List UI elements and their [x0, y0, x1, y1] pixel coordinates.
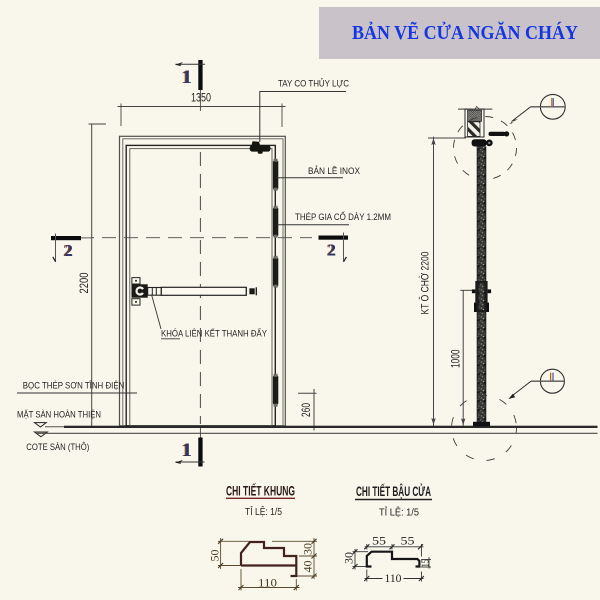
svg-text:COTE SÀN (THÔ): COTE SÀN (THÔ) [26, 442, 89, 453]
svg-text:55: 55 [372, 536, 386, 548]
svg-text:MẶT SÀN HOÀN THIỆN: MẶT SÀN HOÀN THIỆN [17, 410, 101, 421]
svg-text:50: 50 [210, 549, 222, 561]
svg-text:BỌC THÉP SƠN TĨNH ĐIỆN: BỌC THÉP SƠN TĨNH ĐIỆN [23, 381, 125, 392]
svg-text:15: 15 [420, 559, 431, 567]
svg-text:KT Ô CHỜ 2200: KT Ô CHỜ 2200 [419, 252, 432, 315]
svg-text:BẢN VẼ CỬA NGĂN CHÁY: BẢN VẼ CỬA NGĂN CHÁY [352, 20, 578, 44]
svg-text:CHI TIẾT KHUNG: CHI TIẾT KHUNG [226, 484, 295, 499]
svg-text:KHÓA LIÊN KẾT THANH ĐẨY: KHÓA LIÊN KẾT THANH ĐẨY [161, 328, 267, 340]
svg-text:110: 110 [385, 573, 402, 585]
svg-text:1350: 1350 [191, 93, 211, 105]
svg-text:260: 260 [301, 403, 313, 417]
svg-text:55: 55 [401, 536, 415, 548]
svg-text:CHI TIẾT BẬU CỬA: CHI TIẾT BẬU CỬA [356, 484, 431, 499]
svg-text:2200: 2200 [79, 273, 91, 294]
svg-text:BẢN LỀ INOX: BẢN LỀ INOX [308, 165, 361, 177]
svg-text:2: 2 [65, 241, 73, 260]
svg-text:30: 30 [303, 543, 315, 555]
svg-text:TAY CO THỦY LỰC: TAY CO THỦY LỰC [278, 78, 349, 90]
svg-text:2: 2 [328, 241, 336, 260]
svg-text:TỈ LỆ: 1/5: TỈ LỆ: 1/5 [245, 505, 282, 518]
svg-text:THÉP GIA CỐ DÀY 1.2MM: THÉP GIA CỐ DÀY 1.2MM [295, 211, 391, 223]
svg-text:40: 40 [303, 560, 315, 572]
svg-text:110: 110 [258, 578, 277, 590]
svg-text:1: 1 [183, 68, 192, 88]
svg-text:1: 1 [183, 441, 192, 461]
svg-text:TỈ LỆ: 1/5: TỈ LỆ: 1/5 [379, 506, 419, 519]
svg-text:1000: 1000 [450, 350, 462, 369]
